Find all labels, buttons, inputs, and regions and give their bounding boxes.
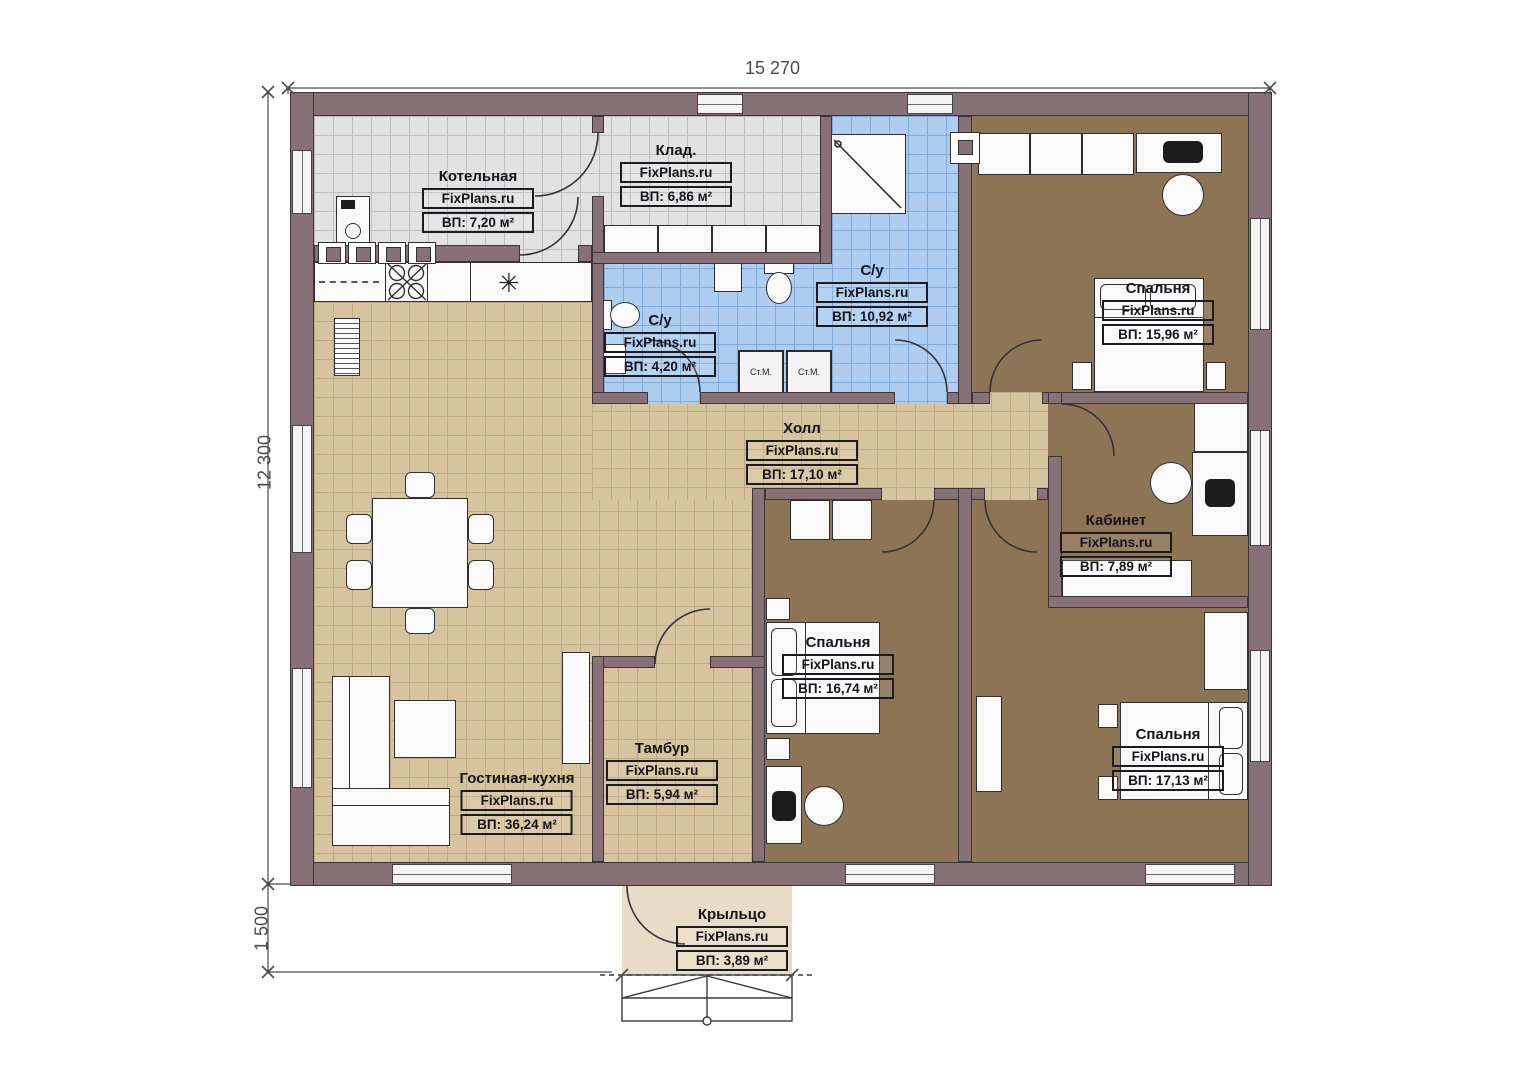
tv-stand [562,652,590,764]
room-name: Тамбур [635,740,689,757]
wardrobe [1082,133,1134,175]
vent-box [378,242,406,264]
cabinet [1204,612,1248,690]
wardrobe [978,133,1030,175]
sofa-cushion-line [349,677,350,791]
dining-chair [468,514,494,544]
room-label-living: Гостиная-кухня FixPlans.ru ВП: 36,24 м² [460,770,575,835]
nightstand [1206,362,1226,390]
room-area: ВП: 3,89 м² [676,950,788,971]
dining-chair [468,560,494,590]
window [292,425,312,553]
washing-machine: Ст.М. [786,350,832,394]
room-area: ВП: 7,89 м² [1060,556,1172,577]
vent-core [326,247,341,262]
wall-hall-bottom-a [765,488,882,500]
room-name: Клад. [656,142,697,159]
window [1250,218,1270,330]
wall-bedroom-tr-bottom-a [972,392,990,404]
sofa-cushion-line [333,805,449,806]
room-area: ВП: 5,94 м² [606,784,718,805]
vent-core [958,140,973,155]
wall-tambur-top-b [710,656,765,668]
watermark: FixPlans.ru [1060,532,1172,553]
asterisk-symbol: ✳ [498,268,520,299]
wall-bedroom-tr-bottom-b [1042,392,1248,404]
boiler-dial [345,223,361,239]
window [1250,430,1270,546]
window [292,668,312,788]
nightstand [1072,362,1092,390]
washer-label: Ст.М. [750,367,772,377]
room-label-su-big: С/у FixPlans.ru ВП: 10,92 м² [816,262,928,327]
desk-chair [804,786,844,826]
counter-divider [470,263,471,301]
computer [1205,479,1235,507]
watermark: FixPlans.ru [1112,746,1224,767]
desk [1136,133,1222,173]
wall-tambur-right [752,488,765,862]
boiler-panel [341,200,355,209]
office-chair [1150,462,1192,504]
room-area: ВП: 16,74 м² [782,678,894,699]
room-label-kabinet: Кабинет FixPlans.ru ВП: 7,89 м² [1060,512,1172,577]
watermark: FixPlans.ru [676,926,788,947]
office-shelf [1194,398,1248,452]
window [907,94,953,114]
room-name: Холл [783,420,821,437]
wall-bath-bottom-b [700,392,895,404]
room-name: Котельная [439,168,518,185]
porch-steps [600,975,814,1025]
room-area: ВП: 7,20 м² [422,212,534,233]
watermark: FixPlans.ru [606,760,718,781]
vent-core [386,247,401,262]
nightstand [766,598,790,620]
nightstand [766,738,790,760]
washing-machine: Ст.М. [738,350,784,394]
dining-chair [405,608,435,634]
room-name: С/у [648,312,671,329]
floor-bedroom-br-arm [965,500,1048,862]
wall-hall-bottom-c [1037,488,1048,500]
watermark: FixPlans.ru [620,162,732,183]
dining-chair [405,472,435,498]
wardrobe [976,696,1002,792]
wall-kabinet-bottom [1048,596,1248,608]
sofa-section [332,676,390,792]
room-name: Крыльцо [698,906,766,923]
wall-v1b [592,196,604,404]
window [392,864,512,884]
vent-box [318,242,346,264]
watermark: FixPlans.ru [746,440,858,461]
room-area: ВП: 6,86 м² [620,186,732,207]
kitchen-counter [314,262,592,302]
wall-v1a [592,116,604,133]
office-desk [1192,452,1248,536]
room-label-tambur: Тамбур FixPlans.ru ВП: 5,94 м² [606,740,718,805]
nightstand [1098,704,1118,728]
room-name: Гостиная-кухня [460,770,575,787]
floor-plan: ✳ Ст.М. Ст.М. [0,0,1528,1080]
room-label-bedroom-mid: Спальня FixPlans.ru ВП: 16,74 м² [782,634,894,699]
wall-outer-top [290,92,1272,116]
desk [766,766,802,844]
room-label-klad: Клад. FixPlans.ru ВП: 6,86 м² [620,142,732,207]
wall-storage-bottom [592,252,832,264]
vent-box [348,242,376,264]
room-label-bedroom-tr: Спальня FixPlans.ru ВП: 15,96 м² [1102,280,1214,345]
washer-label: Ст.М. [798,367,820,377]
vent-core [416,247,431,262]
radiator [334,318,360,376]
wall-kabinet-left-a [1048,392,1062,404]
watermark: FixPlans.ru [782,654,894,675]
dining-chair [346,514,372,544]
room-name: С/у [860,262,883,279]
coffee-table [394,700,456,758]
window [1145,864,1235,884]
computer [772,791,796,821]
dimension-width: 15 270 [745,58,800,79]
printer [1163,141,1203,163]
dining-table [372,498,468,608]
vent-box [408,242,436,264]
room-label-su-small: С/у FixPlans.ru ВП: 4,20 м² [604,312,716,377]
room-name: Кабинет [1086,512,1147,529]
window [697,94,743,114]
room-area: ВП: 17,13 м² [1112,770,1224,791]
wall-boiler-bottom-b [578,245,592,262]
vent-core [356,247,371,262]
sink-dashed-line [319,281,379,283]
sofa-section [332,788,450,846]
room-name: Спальня [1126,280,1191,297]
wall-bedrooms-divider [958,488,972,862]
wardrobe [1030,133,1082,175]
wardrobe [790,500,830,540]
watermark: FixPlans.ru [461,790,573,811]
watermark: FixPlans.ru [1102,300,1214,321]
room-area: ВП: 10,92 м² [816,306,928,327]
room-area: ВП: 17,10 м² [746,464,858,485]
room-label-hall: Холл FixPlans.ru ВП: 17,10 м² [746,420,858,485]
room-area: ВП: 15,96 м² [1102,324,1214,345]
counter-divider [427,263,428,301]
room-area: ВП: 36,24 м² [461,814,573,835]
window [292,150,312,214]
watermark: FixPlans.ru [422,188,534,209]
desk-chair [1162,174,1204,216]
wardrobe [832,500,872,540]
shower-tray [828,134,906,214]
watermark: FixPlans.ru [604,332,716,353]
room-name: Спальня [1136,726,1201,743]
watermark: FixPlans.ru [816,282,928,303]
room-label-kotelnaya: Котельная FixPlans.ru ВП: 7,20 м² [422,168,534,233]
vent-box [950,132,980,164]
room-label-porch: Крыльцо FixPlans.ru ВП: 3,89 м² [676,906,788,971]
window [845,864,935,884]
room-label-bedroom-br: Спальня FixPlans.ru ВП: 17,13 м² [1112,726,1224,791]
dining-chair [346,560,372,590]
wall-bath-bottom-a [592,392,648,404]
room-name: Спальня [806,634,871,651]
wall-tambur-left [592,656,604,862]
window [1250,650,1270,762]
dimension-porch: 1 500 [252,879,273,979]
counter-divider [385,263,386,301]
room-area: ВП: 4,20 м² [604,356,716,377]
wall-storage-right [820,116,832,264]
boiler-unit [336,196,370,246]
dimension-depth: 12 300 [255,413,276,513]
toilet-bowl [766,272,792,304]
